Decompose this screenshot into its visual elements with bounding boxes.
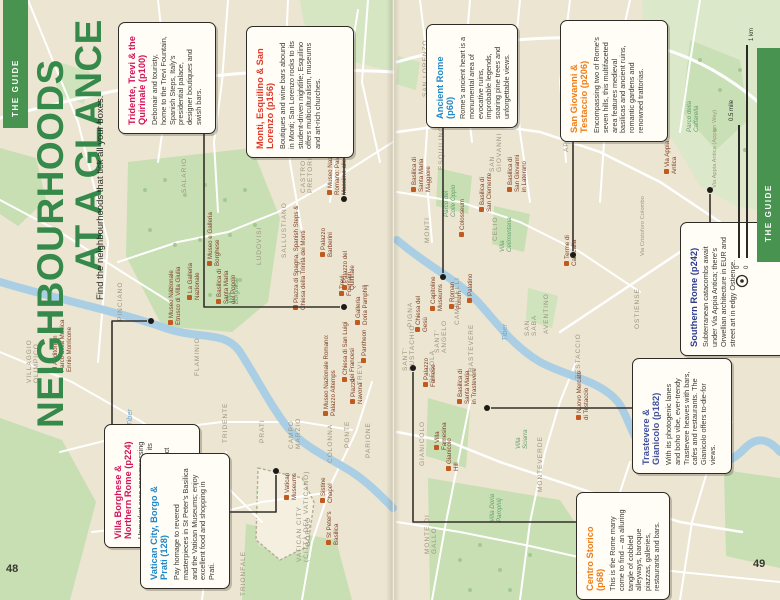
callout-content: Vatican City, Borgo & Prati (128)Pay hom… xyxy=(141,457,226,588)
callout-body: This is the Rome many come to find – an … xyxy=(609,504,662,591)
callout-title: Trastevere & Gianicolo (p182) xyxy=(641,370,662,465)
leader-dot-trastevere xyxy=(484,405,490,411)
leader-dot-san-giovanni xyxy=(570,252,576,258)
callout-vatican-city: Vatican City, Borgo & Prati (128)Pay hom… xyxy=(140,453,230,589)
leader-dot-vatican-city xyxy=(273,468,279,474)
scale-km-line xyxy=(746,45,748,258)
callout-content: San Giovanni & Testaccio (p206)Encompass… xyxy=(561,24,664,141)
callout-title: Southern Rome (p242) xyxy=(689,234,699,347)
callout-body: Rome's ancient heart is a monumental are… xyxy=(459,36,512,119)
callout-body: Boutiques and wine bars abound in Monti;… xyxy=(279,38,323,149)
callout-tridente: Tridente, Trevi & the Quirinale (p100)De… xyxy=(118,22,216,134)
leader-dot-ancient-rome xyxy=(440,274,446,280)
scale-mile-line xyxy=(738,125,740,258)
callout-body: Debonair and touristy, home to the Trevi… xyxy=(151,34,204,125)
callout-content: Tridente, Trevi & the Quirinale (p100)De… xyxy=(119,26,212,133)
leader-line-tridente xyxy=(204,132,340,307)
leader-line-vatican-city xyxy=(228,475,276,512)
the-guide-label: THE GUIDE xyxy=(11,59,20,117)
callout-content: Monti, Esquilino & San Lorenzo (p156)Bou… xyxy=(247,30,350,157)
guidebook-spread: VILLAGGIO OLIMPICOFLAMINIOPINCIANOSALARI… xyxy=(0,0,780,600)
callout-ancient-rome: Ancient Rome (p60)Rome's ancient heart i… xyxy=(426,24,518,128)
the-guide-tab-left: THE GUIDE xyxy=(3,0,28,128)
page-number-left: 48 xyxy=(6,563,18,575)
callout-title: Vatican City, Borgo & Prati (128) xyxy=(149,465,170,580)
leader-dot-monti xyxy=(341,196,347,202)
callout-san-giovanni: San Giovanni & Testaccio (p206)Encompass… xyxy=(560,20,668,142)
callout-title: Villa Borghese & Northern Rome (p224) xyxy=(113,436,134,539)
callout-content: Centro Storico (p68)This is the Rome man… xyxy=(577,496,666,599)
callout-content: Trastevere & Gianicolo (p182)With its ph… xyxy=(633,362,728,473)
callout-body: Subterranean catacombs await under Via A… xyxy=(702,234,738,347)
callout-body: With its photogenic lanes and boho vibe,… xyxy=(665,370,718,465)
callout-body: Pay homage to revered masterpieces in St… xyxy=(173,465,217,580)
leader-dot-southern-rome xyxy=(707,187,713,193)
callout-content: Ancient Rome (p60)Rome's ancient heart i… xyxy=(427,28,514,127)
leader-dot-centro-storico xyxy=(410,365,416,371)
callout-title: Centro Storico (p68) xyxy=(585,504,606,591)
the-guide-label: THE GUIDE xyxy=(764,184,773,242)
page-number-right: 49 xyxy=(753,558,765,570)
the-guide-tab-right: THE GUIDE xyxy=(757,48,780,262)
callout-centro-storico: Centro Storico (p68)This is the Rome man… xyxy=(576,492,670,600)
leader-line-villa-borghese xyxy=(112,321,147,424)
leader-line-centro-storico xyxy=(413,372,576,522)
callout-title: Monti, Esquilino & San Lorenzo (p156) xyxy=(255,38,276,149)
callout-trastevere: Trastevere & Gianicolo (p182)With its ph… xyxy=(632,358,732,474)
leader-dot-tridente xyxy=(341,304,347,310)
callout-title: San Giovanni & Testaccio (p206) xyxy=(569,32,590,133)
callout-title: Tridente, Trevi & the Quirinale (p100) xyxy=(127,34,148,125)
leader-dot-villa-borghese xyxy=(148,318,154,324)
callout-body: Encompassing two of Rome's seven hills, … xyxy=(593,32,646,133)
callout-monti: Monti, Esquilino & San Lorenzo (p156)Bou… xyxy=(246,26,354,158)
callout-title: Ancient Rome (p60) xyxy=(435,36,456,119)
